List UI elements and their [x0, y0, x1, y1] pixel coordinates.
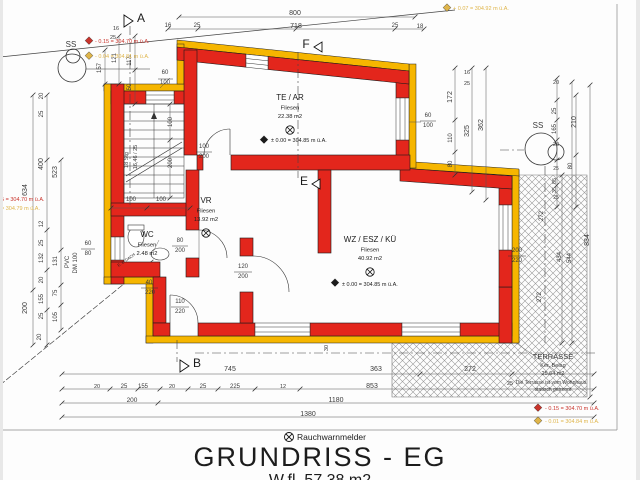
dimension-label: 25 [507, 381, 513, 387]
scan-edge-left [0, 0, 3, 480]
section-marker-a: A [137, 11, 145, 25]
elevation-note: 5 = 304.70 m ü.A. [1, 197, 45, 203]
dimension-label: 210 [571, 116, 578, 128]
smoke-detector-icon [366, 268, 374, 276]
stair-direction-arrow [151, 112, 157, 119]
dimension-label: 100 [160, 80, 171, 86]
floor-plan-canvas: Rauchwarnmelder GRUNDRISS - EG W.fl. 57.… [0, 0, 640, 480]
smoke-detector-icon [202, 229, 210, 237]
room-name: TE / AR [276, 93, 304, 102]
drawing-title: GRUNDRISS - EG [193, 442, 446, 472]
dimension-label: 165 [552, 123, 558, 134]
dimension-label: 634 [22, 184, 29, 196]
dimension-label: 100 [199, 144, 210, 150]
dimension-label: 20 [39, 276, 45, 283]
room-area: 13.92 m2 [194, 217, 218, 223]
smoke-detector-legend-icon [285, 433, 294, 442]
ss-shaft-left-icon [58, 54, 86, 82]
elevation-note: = 304.79 m ü.A. [1, 206, 40, 212]
section-marker-b: B [193, 356, 201, 370]
dimension-label: 853 [366, 383, 378, 390]
room-floor-finish: Fliesen [197, 209, 216, 215]
dimension-label: 25 [200, 384, 207, 390]
dimension-label: 172 [447, 91, 454, 103]
dimension-label: 325 [464, 125, 471, 137]
dimension-label: 220 [512, 258, 523, 264]
dimension-label: statisch getrennt [535, 387, 572, 393]
dimension-label: 20 [94, 384, 100, 390]
room-floor-finish: Fliesen [138, 243, 157, 249]
section-marker-f: F [302, 37, 309, 51]
elevation-note: - 0.15 = 304.70 m ü.A. [95, 39, 150, 45]
dimension-label: 60 [425, 113, 432, 119]
dimension-label: 105 [53, 311, 59, 322]
dimension-label: 272 [537, 291, 543, 302]
dimension-label: 100 [126, 197, 137, 203]
dimension-label: 25 [121, 384, 128, 390]
dimension-label: 25 [39, 312, 45, 319]
dimension-label: 20 [37, 333, 43, 340]
dimension-label: 25 [392, 23, 399, 29]
title-block: Rauchwarnmelder GRUNDRISS - EG W.fl. 57.… [193, 432, 446, 480]
floorplan-page: Rauchwarnmelder GRUNDRISS - EG W.fl. 57.… [0, 0, 640, 480]
dimension-label: 400 [38, 158, 45, 170]
elevation-note: - 0.04 = 304.81 m ü.A. [95, 54, 150, 60]
dimension-label: 523 [52, 166, 59, 178]
dimension-label: 120 [238, 264, 249, 270]
dimension-label: 60 [85, 241, 92, 247]
dimension-label: 25 [39, 110, 45, 117]
elevation-note: - 0.01 = 304.84 m ü.A. [545, 419, 600, 425]
dimension-label: 110 [448, 133, 454, 143]
dimension-label: 50 [127, 83, 133, 90]
dimension-label: 12 [39, 220, 45, 227]
dimension-label: 272 [464, 366, 476, 373]
dimension-label: SS [533, 121, 544, 130]
dimension-label: PVC [65, 255, 71, 268]
dimension-label: 157 [97, 62, 103, 73]
dimension-label: 20 [39, 92, 45, 99]
dimension-label: 80 [568, 162, 574, 169]
dimension-label: ± 0.00 = 304.85 m ü.A. [271, 138, 327, 144]
dimension-label: 100 [423, 123, 434, 129]
dimension-label: 16 [113, 26, 119, 32]
smoke-detector-icon [286, 126, 294, 134]
dimension-label: 85 [552, 178, 558, 184]
dimension-label: 834 [584, 234, 591, 246]
dimension-label: 80 [85, 251, 92, 257]
dimension-label: 75 [53, 289, 59, 296]
dimension-label: 25 [464, 81, 470, 87]
dimension-label: 200 [127, 397, 138, 404]
dimension-label: ± 0.00 = 304.85 m ü.A. [342, 282, 398, 288]
dimension-label: 30 [324, 345, 330, 351]
dimension-label: 155 [138, 384, 149, 390]
dimension-label: 132 [39, 252, 45, 263]
dimension-label: 1380 [300, 411, 316, 418]
dimension-label: 131 [53, 255, 59, 266]
dimension-label: 200 [512, 248, 523, 254]
dimension-label: 20 [169, 384, 175, 390]
dimension-label: 745 [224, 366, 236, 373]
dimension-label: 16,46 / 25 [133, 145, 139, 169]
dimension-label: 35 [552, 187, 558, 193]
dimension-label: 200 [199, 154, 210, 160]
dimension-label: 544 [567, 252, 573, 263]
dimension-label: 100 [156, 197, 167, 203]
room-floor-finish: Fliesen [361, 248, 380, 254]
dimension-label: 25.64 m2 [542, 371, 565, 377]
dimension-label: 200 [168, 157, 174, 168]
dimension-label: 16 [165, 23, 172, 29]
dimension-label: 363 [370, 366, 382, 373]
dimension-label: 25 [194, 23, 201, 29]
dimension-label: 12 [280, 384, 286, 390]
dimension-label: 220 [145, 290, 156, 296]
elevation-note: + 0.07 = 304.92 m ü.A. [453, 6, 509, 12]
dimension-label: TERRASSE [533, 352, 573, 361]
room-area: 2.48 m2 [137, 251, 158, 257]
dimension-label: 60 [162, 70, 169, 76]
dimension-label: 18 Stg [124, 152, 130, 168]
dimension-label: 40 [146, 280, 153, 286]
dimension-label: 800 [289, 10, 301, 17]
dimension-label: SS [66, 40, 77, 49]
dimension-label: 16 [464, 70, 470, 76]
dimension-label: 25 [39, 239, 45, 246]
dimension-label: 225 [230, 384, 241, 390]
dimension-label: 1180 [328, 397, 343, 404]
dimension-label: 220 [175, 309, 186, 315]
dimension-label: 272 [539, 210, 545, 221]
dimension-label: 362 [478, 119, 485, 131]
dimension-label: 200 [238, 274, 249, 280]
room-floor-finish: Fliesen [281, 106, 300, 112]
dimension-label: 155 [39, 293, 45, 304]
dimension-label: 25 [553, 195, 559, 201]
dimension-label: 200 [22, 302, 29, 314]
legend-label: Rauchwarnmelder [297, 432, 366, 442]
section-marker-e: E [300, 174, 308, 188]
dimension-label: 80 [177, 238, 184, 244]
room-name: VR [200, 196, 211, 205]
room-name: WC [140, 230, 154, 239]
room-area: 40.92 m2 [358, 256, 382, 262]
dimension-label: 20 [553, 142, 559, 148]
dimension-label: Die Terrasse ist vom Wohnhaus [516, 380, 587, 386]
dimension-label: 110 [175, 299, 185, 305]
scan-edge-right [636, 0, 640, 480]
dimension-label: Ker. Belag [540, 363, 565, 369]
dimension-label: 200 [175, 248, 186, 254]
dimension-label: 100 [168, 116, 174, 127]
elevation-note: - 0.15 = 304.70 m ü.A. [545, 406, 600, 412]
dimension-label: 434 [557, 251, 563, 262]
dimension-label: 80 [448, 160, 454, 167]
room-name: WZ / ESZ / KÜ [344, 235, 397, 244]
dimension-label: 25 [552, 107, 558, 114]
dimension-label: 25 [553, 166, 559, 172]
dimension-label: 20 [553, 80, 559, 86]
dimension-label: 718 [290, 23, 302, 30]
dimension-label: 18 [417, 24, 424, 30]
ss-shaft-right-icon [525, 133, 557, 165]
drawing-subtitle: W.fl. 57.38 m2 [269, 472, 371, 480]
dimension-label: DM 100 [73, 252, 79, 274]
room-area: 22.38 m2 [278, 114, 302, 120]
